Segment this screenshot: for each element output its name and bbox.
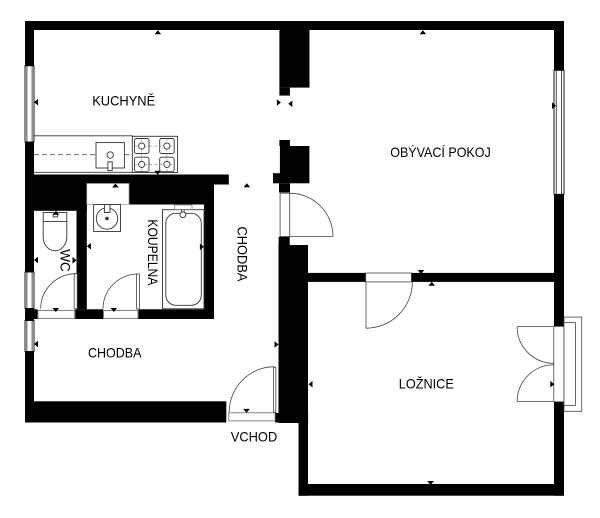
svg-text:CHODBA: CHODBA — [235, 226, 251, 282]
svg-text:WC: WC — [58, 249, 74, 272]
svg-text:VCHOD: VCHOD — [231, 429, 278, 445]
svg-text:OBÝVACÍ POKOJ: OBÝVACÍ POKOJ — [390, 144, 491, 160]
svg-text:CHODBA: CHODBA — [88, 345, 142, 361]
svg-text:KUCHYNĚ: KUCHYNĚ — [92, 93, 155, 109]
svg-text:LOŽNICE: LOŽNICE — [399, 376, 454, 392]
svg-text:KOUPELNA: KOUPELNA — [145, 219, 161, 286]
